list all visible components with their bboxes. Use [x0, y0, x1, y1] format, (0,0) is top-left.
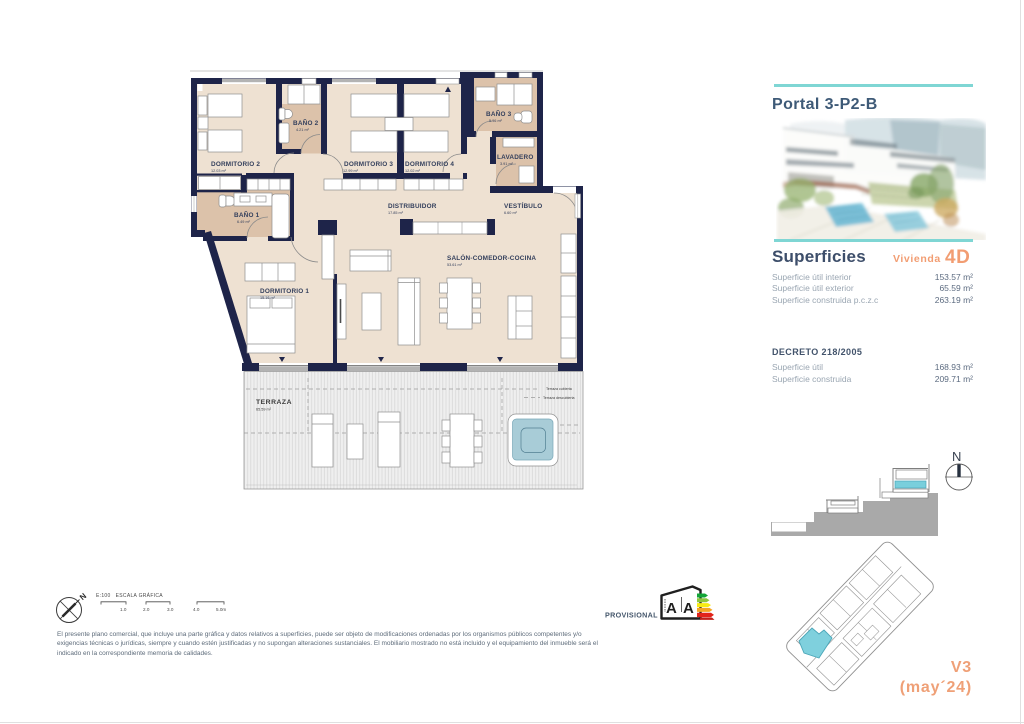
svg-text:BAÑO 3: BAÑO 3 [486, 109, 512, 118]
svg-text:1.0: 1.0 [120, 607, 127, 612]
svg-text:DORMITORIO 1: DORMITORIO 1 [260, 288, 309, 295]
svg-text:BAÑO 2: BAÑO 2 [293, 118, 319, 127]
svg-text:4.21 m²: 4.21 m² [296, 128, 310, 132]
svg-text:Terraza cubierta: Terraza cubierta [546, 387, 572, 391]
svg-text:N: N [78, 591, 88, 602]
svg-text:BAÑO 1: BAÑO 1 [234, 210, 260, 219]
svg-text:A: A [683, 600, 694, 617]
svg-text:DORMITORIO 2: DORMITORIO 2 [211, 161, 260, 168]
svg-text:12.02 m²: 12.02 m² [405, 169, 421, 173]
svg-text:E:100 ESCALA GRÁFICA: E:100 ESCALA GRÁFICA [96, 592, 163, 599]
svg-text:SALÓN-COMEDOR-COCINA: SALÓN-COMEDOR-COCINA [447, 253, 536, 262]
svg-text:5.0m: 5.0m [216, 607, 226, 612]
svg-text:6.49 m²: 6.49 m² [237, 220, 251, 224]
svg-text:5.96 m²: 5.96 m² [489, 119, 503, 123]
svg-text:DORMITORIO 3: DORMITORIO 3 [344, 161, 393, 168]
svg-text:3.91 m²: 3.91 m² [500, 162, 514, 166]
svg-text:4.0: 4.0 [193, 607, 200, 612]
svg-text:17.85 m²: 17.85 m² [388, 211, 404, 215]
svg-text:DISTRIBUIDOR: DISTRIBUIDOR [388, 203, 437, 210]
svg-text:53.61 m²: 53.61 m² [447, 263, 463, 267]
svg-text:Terraza descubierta: Terraza descubierta [543, 396, 575, 400]
svg-text:LAVADERO: LAVADERO [497, 154, 534, 161]
svg-text:15.16 m²: 15.16 m² [260, 296, 276, 300]
svg-text:TERRAZA: TERRAZA [256, 399, 292, 406]
svg-text:2.0: 2.0 [143, 607, 150, 612]
svg-text:PROVISIONAL: PROVISIONAL [605, 611, 658, 620]
svg-text:VESTÍBULO: VESTÍBULO [504, 201, 542, 210]
svg-text:DORMITORIO 4: DORMITORIO 4 [405, 161, 454, 168]
svg-text:6.60 m²: 6.60 m² [504, 211, 518, 215]
svg-text:12.99 m²: 12.99 m² [343, 169, 359, 173]
svg-text:65.59 m²: 65.59 m² [256, 408, 272, 412]
svg-text:3.0: 3.0 [167, 607, 174, 612]
svg-text:12.03 m²: 12.03 m² [211, 169, 227, 173]
svg-text:N: N [952, 449, 961, 464]
svg-text:A: A [666, 600, 677, 617]
